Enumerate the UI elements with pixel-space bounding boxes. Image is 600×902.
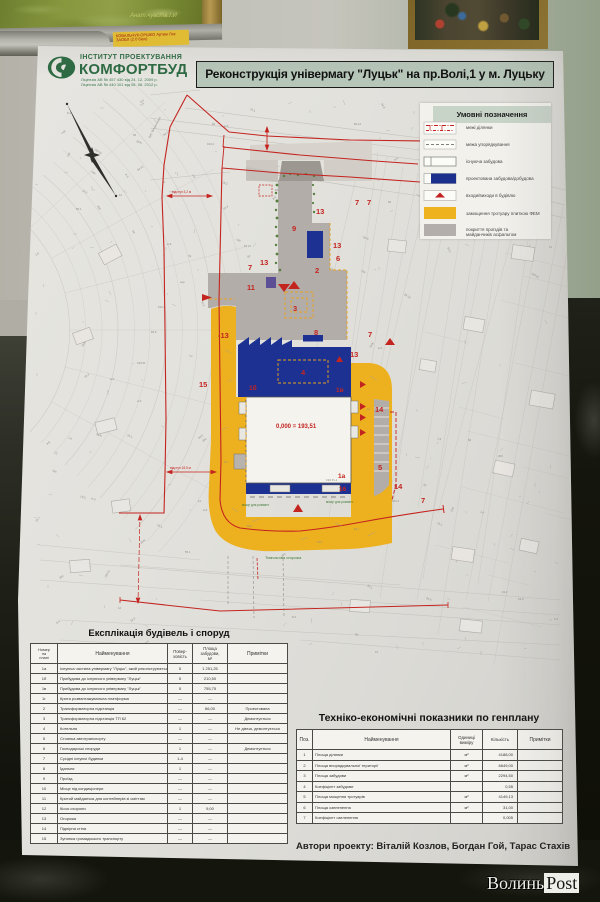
svg-text:55.1: 55.1: [437, 521, 444, 527]
svg-text:сар.: сар.: [236, 237, 243, 243]
svg-text:7: 7: [367, 198, 371, 207]
svg-text:84: 84: [131, 230, 136, 235]
svg-text:7: 7: [368, 330, 372, 339]
svg-text:відступ 18,5 м: відступ 18,5 м: [170, 466, 191, 470]
svg-text:16: 16: [339, 486, 347, 493]
svg-text:8.4: 8.4: [139, 98, 145, 104]
svg-text:12: 12: [118, 606, 122, 610]
svg-text:193.61: 193.61: [103, 569, 111, 579]
svg-text:55.1: 55.1: [200, 301, 206, 308]
svg-text:19.3: 19.3: [222, 180, 229, 186]
svg-text:1.8: 1.8: [34, 251, 40, 257]
svg-text:84: 84: [468, 438, 472, 442]
svg-text:6: 6: [336, 254, 340, 263]
svg-text:84: 84: [388, 200, 392, 204]
svg-text:Тимчасова огорожа: Тимчасова огорожа: [265, 555, 302, 560]
svg-text:1а: 1а: [338, 473, 346, 480]
svg-text:84.6: 84.6: [380, 103, 386, 110]
svg-text:1.8: 1.8: [437, 436, 442, 441]
svg-text:55.1: 55.1: [446, 247, 452, 254]
svg-text:55.1: 55.1: [127, 433, 134, 439]
svg-text:84: 84: [133, 133, 137, 137]
svg-text:місце для розвант.: місце для розвант.: [326, 500, 354, 504]
svg-text:55.1: 55.1: [185, 550, 191, 554]
svg-text:1.8: 1.8: [191, 174, 197, 180]
svg-text:193.2: 193.2: [207, 142, 214, 146]
svg-text:19.3: 19.3: [129, 616, 136, 623]
svg-text:84.12: 84.12: [244, 244, 251, 248]
svg-text:14: 14: [394, 482, 403, 491]
svg-text:ж.б.: ж.б.: [167, 242, 172, 246]
svg-text:сар.: сар.: [52, 468, 59, 474]
svg-text:84.6: 84.6: [247, 524, 253, 528]
svg-text:193.2: 193.2: [392, 499, 399, 503]
svg-text:2: 2: [315, 266, 319, 275]
svg-text:55.1: 55.1: [367, 583, 374, 589]
svg-text:сар.: сар.: [91, 169, 98, 175]
svg-text:1б: 1б: [249, 384, 257, 392]
svg-text:ж.б.: ж.б.: [91, 496, 97, 502]
svg-text:8: 8: [314, 328, 318, 337]
svg-text:84.12: 84.12: [136, 164, 144, 172]
svg-text:8.4: 8.4: [224, 460, 228, 464]
svg-text:7: 7: [355, 198, 359, 207]
svg-text:15: 15: [199, 380, 207, 389]
svg-text:сар.: сар.: [60, 128, 67, 134]
svg-text:13: 13: [350, 350, 358, 359]
svg-text:19.5: 19.5: [317, 540, 323, 544]
svg-text:ж.б.: ж.б.: [124, 173, 130, 180]
svg-text:13: 13: [333, 241, 341, 250]
svg-text:відступ 3,2 м: відступ 3,2 м: [172, 190, 191, 194]
svg-text:84.6: 84.6: [426, 596, 433, 602]
svg-text:55.1: 55.1: [157, 523, 164, 529]
svg-text:5: 5: [378, 463, 382, 472]
svg-text:13: 13: [260, 258, 268, 267]
svg-text:12: 12: [198, 499, 202, 503]
svg-text:19.3: 19.3: [80, 494, 87, 500]
svg-text:2КЖ: 2КЖ: [136, 139, 143, 145]
svg-text:ж.б.: ж.б.: [137, 399, 142, 403]
svg-text:1.8: 1.8: [68, 435, 74, 441]
svg-text:200: 200: [449, 506, 455, 512]
svg-text:-13: -13: [218, 331, 229, 340]
svg-text:84: 84: [423, 482, 428, 487]
svg-text:193 Р+1: 193 Р+1: [326, 478, 338, 482]
svg-text:84.12: 84.12: [354, 122, 361, 126]
svg-text:2КЖ: 2КЖ: [139, 538, 146, 545]
svg-text:ж.б.: ж.б.: [110, 377, 115, 381]
svg-text:12: 12: [119, 193, 123, 197]
svg-text:12: 12: [375, 650, 379, 654]
svg-text:55.1: 55.1: [34, 515, 40, 522]
svg-text:7: 7: [421, 496, 425, 505]
svg-text:ж.б.: ж.б.: [45, 440, 52, 446]
svg-text:вул. Винниченка: вул. Винниченка: [147, 116, 161, 138]
svg-text:сар.: сар.: [180, 280, 186, 284]
svg-text:3: 3: [293, 304, 297, 313]
svg-text:84.6: 84.6: [363, 235, 370, 241]
svg-text:11: 11: [247, 283, 255, 292]
svg-text:193.61: 193.61: [137, 361, 146, 365]
svg-text:84: 84: [212, 122, 216, 126]
svg-text:12: 12: [53, 450, 58, 455]
svg-text:7: 7: [248, 263, 252, 272]
svg-text:ж.б.: ж.б.: [203, 508, 208, 512]
svg-text:19.3: 19.3: [82, 188, 89, 194]
svg-text:ж.б.: ж.б.: [378, 346, 383, 350]
svg-text:55.1: 55.1: [76, 207, 82, 211]
svg-text:84.6: 84.6: [151, 330, 157, 334]
svg-text:13: 13: [316, 207, 324, 216]
svg-text:200: 200: [58, 574, 64, 580]
svg-text:14: 14: [375, 405, 384, 414]
svg-text:8.4: 8.4: [292, 615, 296, 619]
svg-text:ж.б.: ж.б.: [224, 124, 229, 128]
svg-text:1в: 1в: [336, 387, 344, 394]
svg-text:84: 84: [246, 254, 251, 259]
svg-text:1.8: 1.8: [480, 509, 486, 515]
svg-text:9: 9: [292, 224, 296, 233]
svg-text:84.1: 84.1: [354, 527, 360, 531]
svg-text:0,000 = 193,51: 0,000 = 193,51: [276, 424, 317, 430]
svg-text:місце для розвант.: місце для розвант.: [242, 503, 270, 507]
svg-text:55.1: 55.1: [250, 107, 257, 113]
svg-text:84.12: 84.12: [404, 292, 412, 299]
svg-text:19.3: 19.3: [222, 204, 229, 211]
svg-text:8.4: 8.4: [393, 156, 399, 162]
svg-text:200: 200: [96, 205, 102, 211]
